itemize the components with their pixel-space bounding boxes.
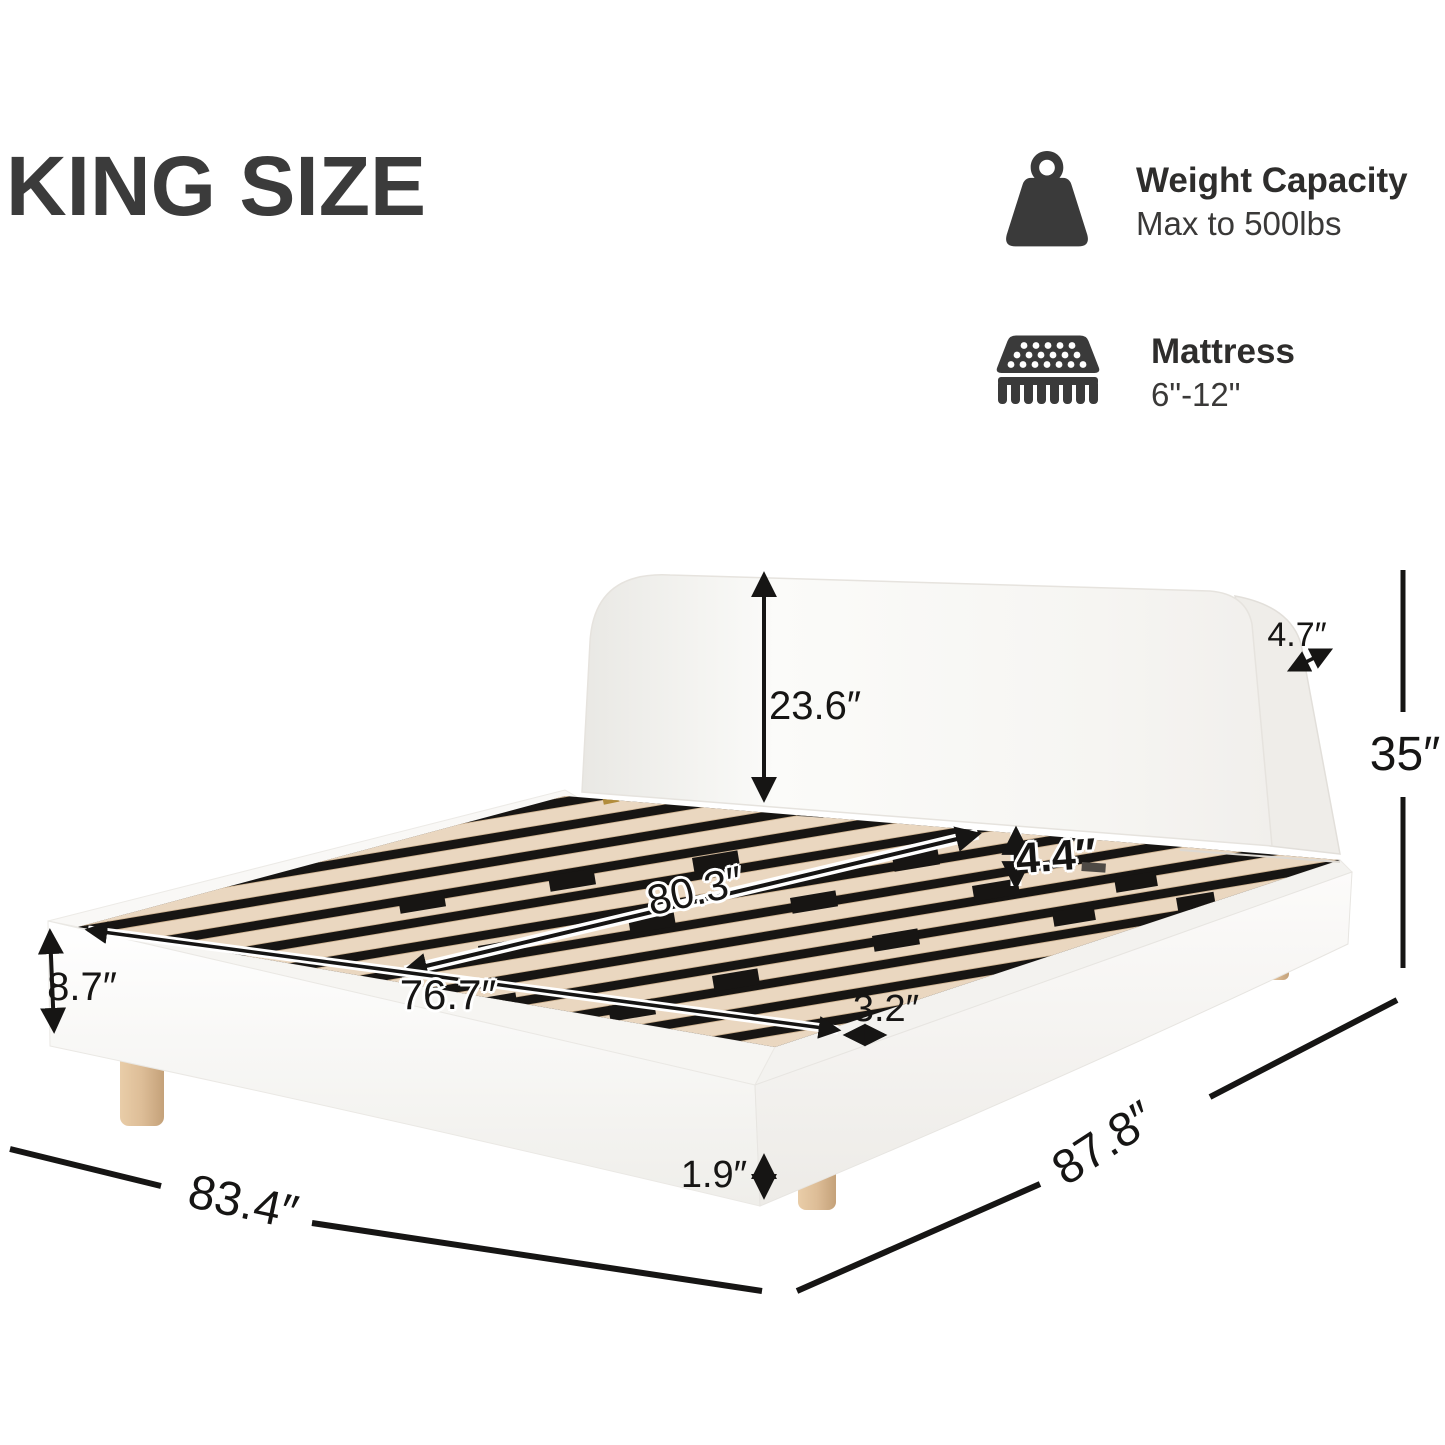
headboard <box>582 575 1272 846</box>
dim-total-height: 35″ <box>1370 731 1440 779</box>
dim-headboard-height: 23.6″ <box>769 686 861 726</box>
dim-side-rail-height: 8.7″ <box>47 967 117 1007</box>
dim-slat-side-gap: 3.2″ <box>853 990 919 1028</box>
bed-illustration <box>0 0 1445 1445</box>
dim-leg-height: 1.9″ <box>681 1156 747 1194</box>
king-size-bed-dimension-diagram: KING SIZE Weight Capacity Max to 500lbs <box>0 0 1445 1445</box>
dim-slat-clearance: 4.4″ <box>1014 833 1097 882</box>
dim-slat-width: 76.7″ <box>400 974 497 1016</box>
dim-headboard-thickness: 4.7″ <box>1267 618 1326 652</box>
